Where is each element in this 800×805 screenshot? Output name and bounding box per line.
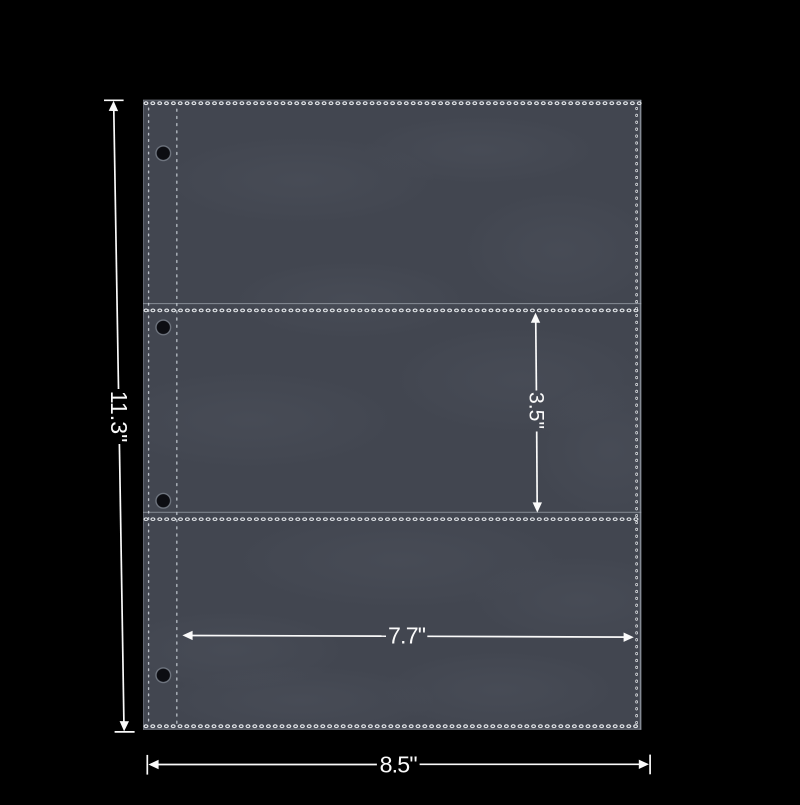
svg-text:3.5": 3.5"	[525, 392, 548, 429]
svg-text:8.5": 8.5"	[380, 752, 418, 778]
svg-text:7.7": 7.7"	[388, 623, 426, 649]
svg-text:11.3": 11.3"	[106, 391, 132, 443]
